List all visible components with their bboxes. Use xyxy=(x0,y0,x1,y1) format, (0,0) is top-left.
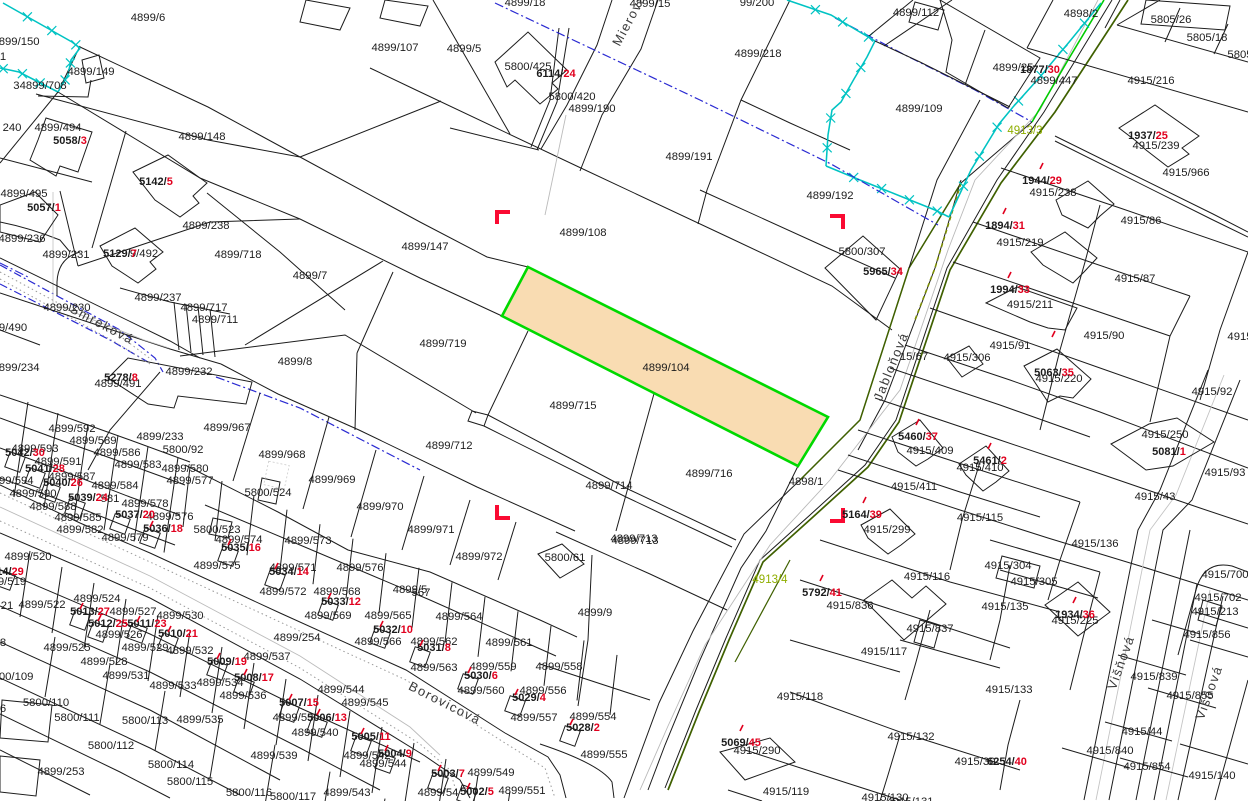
svg-text:4915/840: 4915/840 xyxy=(1086,745,1133,757)
svg-text:240: 240 xyxy=(3,122,22,134)
svg-text:4915/136: 4915/136 xyxy=(1071,538,1118,550)
svg-text:1894/31: 1894/31 xyxy=(985,220,1025,232)
svg-text:4899/5: 4899/5 xyxy=(447,43,482,55)
svg-text:5040/26: 5040/26 xyxy=(43,477,83,489)
svg-text:4899/577: 4899/577 xyxy=(166,475,213,487)
svg-text:5800/116: 5800/116 xyxy=(226,787,272,799)
svg-text:4899/545: 4899/545 xyxy=(341,697,388,709)
svg-text:5036/18: 5036/18 xyxy=(143,523,183,535)
svg-text:6: 6 xyxy=(0,703,6,715)
svg-text:5069/45: 5069/45 xyxy=(721,737,761,749)
svg-text:4915/86: 4915/86 xyxy=(1121,215,1162,227)
svg-text:4899/495: 4899/495 xyxy=(0,188,47,200)
svg-text:5039/24: 5039/24 xyxy=(68,492,109,504)
svg-text:4899/237: 4899/237 xyxy=(134,292,181,304)
svg-text:4899/531: 4899/531 xyxy=(102,670,149,682)
svg-text:5009/19: 5009/19 xyxy=(207,656,247,668)
svg-text:4915/116: 4915/116 xyxy=(904,571,950,583)
svg-text:4915/44: 4915/44 xyxy=(1122,726,1163,738)
svg-text:4915/854: 4915/854 xyxy=(1123,761,1170,773)
svg-text:5033/12: 5033/12 xyxy=(321,596,361,608)
svg-text:5800/61: 5800/61 xyxy=(545,552,586,564)
svg-text:5800/111: 5800/111 xyxy=(54,712,99,724)
svg-text:4899/711: 4899/711 xyxy=(192,314,238,326)
svg-text:4899/564: 4899/564 xyxy=(435,611,482,623)
svg-text:4899/549: 4899/549 xyxy=(467,767,514,779)
svg-text:5800/117: 5800/117 xyxy=(270,791,316,801)
svg-text:4915/305: 4915/305 xyxy=(1010,576,1057,588)
svg-text:4899/231: 4899/231 xyxy=(42,249,89,261)
svg-text:4915/213: 4915/213 xyxy=(1191,606,1238,618)
svg-text:4899/584: 4899/584 xyxy=(91,480,138,492)
svg-text:6114/24: 6114/24 xyxy=(536,68,576,80)
svg-text:4899/586: 4899/586 xyxy=(93,447,140,459)
svg-text:4915/118: 4915/118 xyxy=(777,691,823,703)
svg-text:4899/522: 4899/522 xyxy=(18,599,65,611)
svg-text:4899/537: 4899/537 xyxy=(243,651,290,663)
svg-text:5792/41: 5792/41 xyxy=(802,587,842,599)
svg-text:4899/520: 4899/520 xyxy=(4,551,51,563)
svg-text:5805/18: 5805/18 xyxy=(1187,32,1228,44)
svg-text:4915/250: 4915/250 xyxy=(1141,429,1188,441)
svg-text:4899/575: 4899/575 xyxy=(193,560,240,572)
svg-text:5800/92: 5800/92 xyxy=(163,444,204,456)
svg-text:4899/557: 4899/557 xyxy=(510,712,557,724)
svg-text:9/490: 9/490 xyxy=(0,322,27,334)
svg-text:4899/447: 4899/447 xyxy=(1030,75,1077,87)
svg-text:4899/539: 4899/539 xyxy=(250,750,297,762)
svg-text:4899/9: 4899/9 xyxy=(578,607,613,619)
svg-text:4915/90: 4915/90 xyxy=(1084,330,1125,342)
svg-text:5800/524: 5800/524 xyxy=(244,487,291,499)
svg-text:4915/211: 4915/211 xyxy=(1007,299,1053,311)
svg-text:5063/35: 5063/35 xyxy=(1034,367,1074,379)
svg-text:99/200: 99/200 xyxy=(740,0,775,9)
svg-text:4899/967: 4899/967 xyxy=(203,422,250,434)
svg-text:1944/29: 1944/29 xyxy=(1022,175,1062,187)
svg-text:5013/27: 5013/27 xyxy=(70,606,110,618)
svg-text:21: 21 xyxy=(1,600,14,612)
svg-text:4899/149: 4899/149 xyxy=(67,66,114,78)
svg-text:4899/590: 4899/590 xyxy=(9,488,56,500)
svg-text:6254/40: 6254/40 xyxy=(987,756,1027,768)
svg-text:567: 567 xyxy=(412,587,431,599)
svg-text:4899/192: 4899/192 xyxy=(806,190,853,202)
svg-text:5037/20: 5037/20 xyxy=(115,509,155,521)
svg-text:8: 8 xyxy=(0,637,6,649)
svg-text:4898/1: 4898/1 xyxy=(789,476,824,488)
svg-text:4899/972: 4899/972 xyxy=(455,551,502,563)
svg-text:34899/708: 34899/708 xyxy=(13,80,66,92)
svg-text:900/109: 900/109 xyxy=(0,671,33,683)
svg-text:4899/719: 4899/719 xyxy=(419,338,466,350)
svg-text:5058/3: 5058/3 xyxy=(53,135,87,147)
svg-text:4915/700: 4915/700 xyxy=(1201,569,1248,581)
svg-text:4913/3: 4913/3 xyxy=(1007,125,1042,137)
svg-text:5042/30: 5042/30 xyxy=(5,447,45,459)
svg-text:5800/115: 5800/115 xyxy=(167,776,213,788)
svg-text:4899/234: 4899/234 xyxy=(0,362,40,374)
svg-text:4915/119: 4915/119 xyxy=(763,786,809,798)
svg-text:1934/36: 1934/36 xyxy=(1055,609,1095,621)
svg-text:4899/528: 4899/528 xyxy=(80,656,127,668)
svg-text:4915/411: 4915/411 xyxy=(891,481,937,493)
svg-text:5031/8: 5031/8 xyxy=(417,642,451,654)
svg-text:4899/191: 4899/191 xyxy=(665,151,712,163)
svg-text:5004/9: 5004/9 xyxy=(378,748,412,760)
svg-text:4899/971: 4899/971 xyxy=(407,524,454,536)
svg-text:4915/117: 4915/117 xyxy=(861,646,907,658)
svg-text:4899/969: 4899/969 xyxy=(308,474,355,486)
svg-text:4899/524: 4899/524 xyxy=(73,593,120,605)
svg-text:5461/2: 5461/2 xyxy=(973,455,1007,467)
svg-text:5800/420: 5800/420 xyxy=(548,91,595,103)
svg-text:4915/836: 4915/836 xyxy=(826,600,873,612)
svg-text:5129/7: 5129/7 xyxy=(103,248,137,260)
svg-text:5012/25: 5012/25 xyxy=(88,618,128,630)
svg-text:5035/16: 5035/16 xyxy=(221,542,261,554)
svg-text:5057/1: 5057/1 xyxy=(27,202,61,214)
svg-text:4899/543: 4899/543 xyxy=(323,787,370,799)
svg-text:4899/112: 4899/112 xyxy=(893,7,939,19)
svg-text:4899/715: 4899/715 xyxy=(549,400,596,412)
svg-text:4899/712: 4899/712 xyxy=(425,440,472,452)
svg-text:4913/4: 4913/4 xyxy=(752,574,788,586)
svg-text:5032/10: 5032/10 xyxy=(373,624,413,636)
svg-text:4899/108: 4899/108 xyxy=(559,227,606,239)
svg-text:4899/566: 4899/566 xyxy=(354,636,401,648)
svg-text:4899/580: 4899/580 xyxy=(161,463,208,475)
svg-text:4915/409: 4915/409 xyxy=(906,445,953,457)
svg-text:5805/26: 5805/26 xyxy=(1151,14,1192,26)
svg-text:5460/37: 5460/37 xyxy=(898,431,938,443)
svg-text:5142/5: 5142/5 xyxy=(139,176,173,188)
svg-text:4899/572: 4899/572 xyxy=(259,586,306,598)
svg-text:1937/25: 1937/25 xyxy=(1128,130,1168,142)
svg-text:4899/107: 4899/107 xyxy=(371,42,418,54)
svg-text:4915/87: 4915/87 xyxy=(1115,273,1156,285)
svg-text:4915/839: 4915/839 xyxy=(1130,671,1177,683)
svg-text:4899/583: 4899/583 xyxy=(114,459,161,471)
svg-text:4899/970: 4899/970 xyxy=(356,501,403,513)
svg-text:4899/569: 4899/569 xyxy=(304,610,351,622)
svg-text:4899/594: 4899/594 xyxy=(0,475,34,487)
svg-text:4915/92: 4915/92 xyxy=(1192,386,1233,398)
svg-text:4915: 4915 xyxy=(1227,331,1248,343)
svg-text:5003/7: 5003/7 xyxy=(431,768,465,780)
svg-text:4899/218: 4899/218 xyxy=(734,48,781,60)
svg-text:4899/718: 4899/718 xyxy=(214,249,261,261)
svg-text:5965/34: 5965/34 xyxy=(863,266,904,278)
svg-text:4899/190: 4899/190 xyxy=(568,103,615,115)
svg-text:4899/494: 4899/494 xyxy=(34,122,81,134)
svg-text:4899/18: 4899/18 xyxy=(505,0,546,9)
svg-text:4899/254: 4899/254 xyxy=(273,632,320,644)
svg-text:4915/133: 4915/133 xyxy=(985,684,1032,696)
svg-text:4899/253: 4899/253 xyxy=(37,766,84,778)
svg-text:4899/54: 4899/54 xyxy=(418,787,459,799)
svg-text:4898/2: 4898/2 xyxy=(1064,8,1099,20)
svg-text:4915/702: 4915/702 xyxy=(1194,592,1241,604)
svg-text:5164/39: 5164/39 xyxy=(842,509,882,521)
svg-text:5007/15: 5007/15 xyxy=(279,697,319,709)
svg-text:4915/856: 4915/856 xyxy=(1183,629,1230,641)
svg-text:14/29: 14/29 xyxy=(0,566,24,578)
svg-text:4899/573: 4899/573 xyxy=(284,535,331,547)
svg-text:4899/561: 4899/561 xyxy=(485,637,532,649)
svg-text:4915/91: 4915/91 xyxy=(990,340,1031,352)
svg-text:4899/589: 4899/589 xyxy=(69,435,116,447)
svg-text:5008/17: 5008/17 xyxy=(234,672,274,684)
svg-text:4915/837: 4915/837 xyxy=(906,623,953,635)
svg-text:4899/150: 4899/150 xyxy=(0,36,40,48)
svg-text:4899/563: 4899/563 xyxy=(410,662,457,674)
svg-text:4899/585: 4899/585 xyxy=(54,512,101,524)
svg-text:5800/307: 5800/307 xyxy=(838,246,885,258)
svg-text:4899/558: 4899/558 xyxy=(535,661,582,673)
svg-text:4915/304: 4915/304 xyxy=(984,560,1031,572)
svg-text:5800/110: 5800/110 xyxy=(23,697,69,709)
svg-text:4915/115: 4915/115 xyxy=(957,512,1003,524)
svg-text:5800/113: 5800/113 xyxy=(122,715,168,727)
svg-text:4915/299: 4915/299 xyxy=(863,524,910,536)
svg-text:4899/582: 4899/582 xyxy=(56,524,103,536)
svg-text:4915/306: 4915/306 xyxy=(943,352,990,364)
svg-text:5805: 5805 xyxy=(1227,49,1248,61)
svg-text:4899/576: 4899/576 xyxy=(336,562,383,574)
svg-text:4899/233: 4899/233 xyxy=(136,431,183,443)
svg-text:1877/30: 1877/30 xyxy=(1020,64,1060,76)
svg-text:4899/713: 4899/713 xyxy=(610,533,657,545)
svg-text:4899/7: 4899/7 xyxy=(293,270,328,282)
svg-text:4899/551: 4899/551 xyxy=(498,785,545,797)
svg-text:4899/592: 4899/592 xyxy=(48,423,95,435)
svg-text:4899/535: 4899/535 xyxy=(176,714,223,726)
svg-text:4899/6: 4899/6 xyxy=(131,12,166,24)
svg-text:4899/148: 4899/148 xyxy=(178,131,225,143)
svg-text:4915/966: 4915/966 xyxy=(1162,167,1209,179)
svg-text:4899/232: 4899/232 xyxy=(165,366,212,378)
svg-text:4899/540: 4899/540 xyxy=(291,727,338,739)
svg-text:4915/43: 4915/43 xyxy=(1135,491,1176,503)
svg-text:4899/236: 4899/236 xyxy=(0,233,46,245)
svg-text:4915/238: 4915/238 xyxy=(1029,187,1076,199)
svg-text:4899/579: 4899/579 xyxy=(101,532,148,544)
svg-text:5006/13: 5006/13 xyxy=(307,712,347,724)
svg-text:4899/104: 4899/104 xyxy=(642,362,689,374)
svg-text:4915/131: 4915/131 xyxy=(886,796,933,801)
svg-text:4899/968: 4899/968 xyxy=(258,449,305,461)
svg-text:4899/560: 4899/560 xyxy=(457,685,504,697)
svg-text:5041/28: 5041/28 xyxy=(25,463,65,475)
svg-text:4899/525: 4899/525 xyxy=(43,642,90,654)
svg-text:4899/109: 4899/109 xyxy=(895,103,942,115)
svg-text:4899/527: 4899/527 xyxy=(109,606,156,618)
svg-text:4899/714: 4899/714 xyxy=(585,480,632,492)
svg-text:5010/21: 5010/21 xyxy=(158,628,198,640)
svg-text:4899/717: 4899/717 xyxy=(180,302,227,314)
svg-text:5800/114: 5800/114 xyxy=(148,759,194,771)
svg-text:5002/5: 5002/5 xyxy=(460,786,494,798)
svg-text:4899/555: 4899/555 xyxy=(580,749,627,761)
svg-text:4899/8: 4899/8 xyxy=(278,356,313,368)
svg-text:4899/533: 4899/533 xyxy=(149,680,196,692)
svg-text:4899/565: 4899/565 xyxy=(364,610,411,622)
svg-text:4915/219: 4915/219 xyxy=(996,237,1043,249)
svg-text:4899/529: 4899/529 xyxy=(121,642,168,654)
svg-text:1994/33: 1994/33 xyxy=(990,284,1030,296)
svg-text:4915/216: 4915/216 xyxy=(1127,75,1174,87)
svg-text:5081/1: 5081/1 xyxy=(1152,446,1186,458)
svg-text:5800/112: 5800/112 xyxy=(88,740,134,752)
svg-text:5005/11: 5005/11 xyxy=(351,731,390,743)
svg-text:4899/544: 4899/544 xyxy=(317,684,364,696)
svg-text:4915/93: 4915/93 xyxy=(1205,467,1246,479)
svg-text:4899/147: 4899/147 xyxy=(401,241,448,253)
svg-text:4899/238: 4899/238 xyxy=(182,220,229,232)
svg-text:1: 1 xyxy=(0,51,6,63)
svg-text:5029/4: 5029/4 xyxy=(512,692,547,704)
svg-text:4915/140: 4915/140 xyxy=(1188,770,1235,782)
svg-text:4899/526: 4899/526 xyxy=(95,629,142,641)
svg-text:5278/8: 5278/8 xyxy=(104,372,138,384)
svg-text:4899/716: 4899/716 xyxy=(685,468,732,480)
svg-text:4915/135: 4915/135 xyxy=(981,601,1028,613)
svg-text:4915/132: 4915/132 xyxy=(887,731,934,743)
svg-text:4899/536: 4899/536 xyxy=(219,690,266,702)
